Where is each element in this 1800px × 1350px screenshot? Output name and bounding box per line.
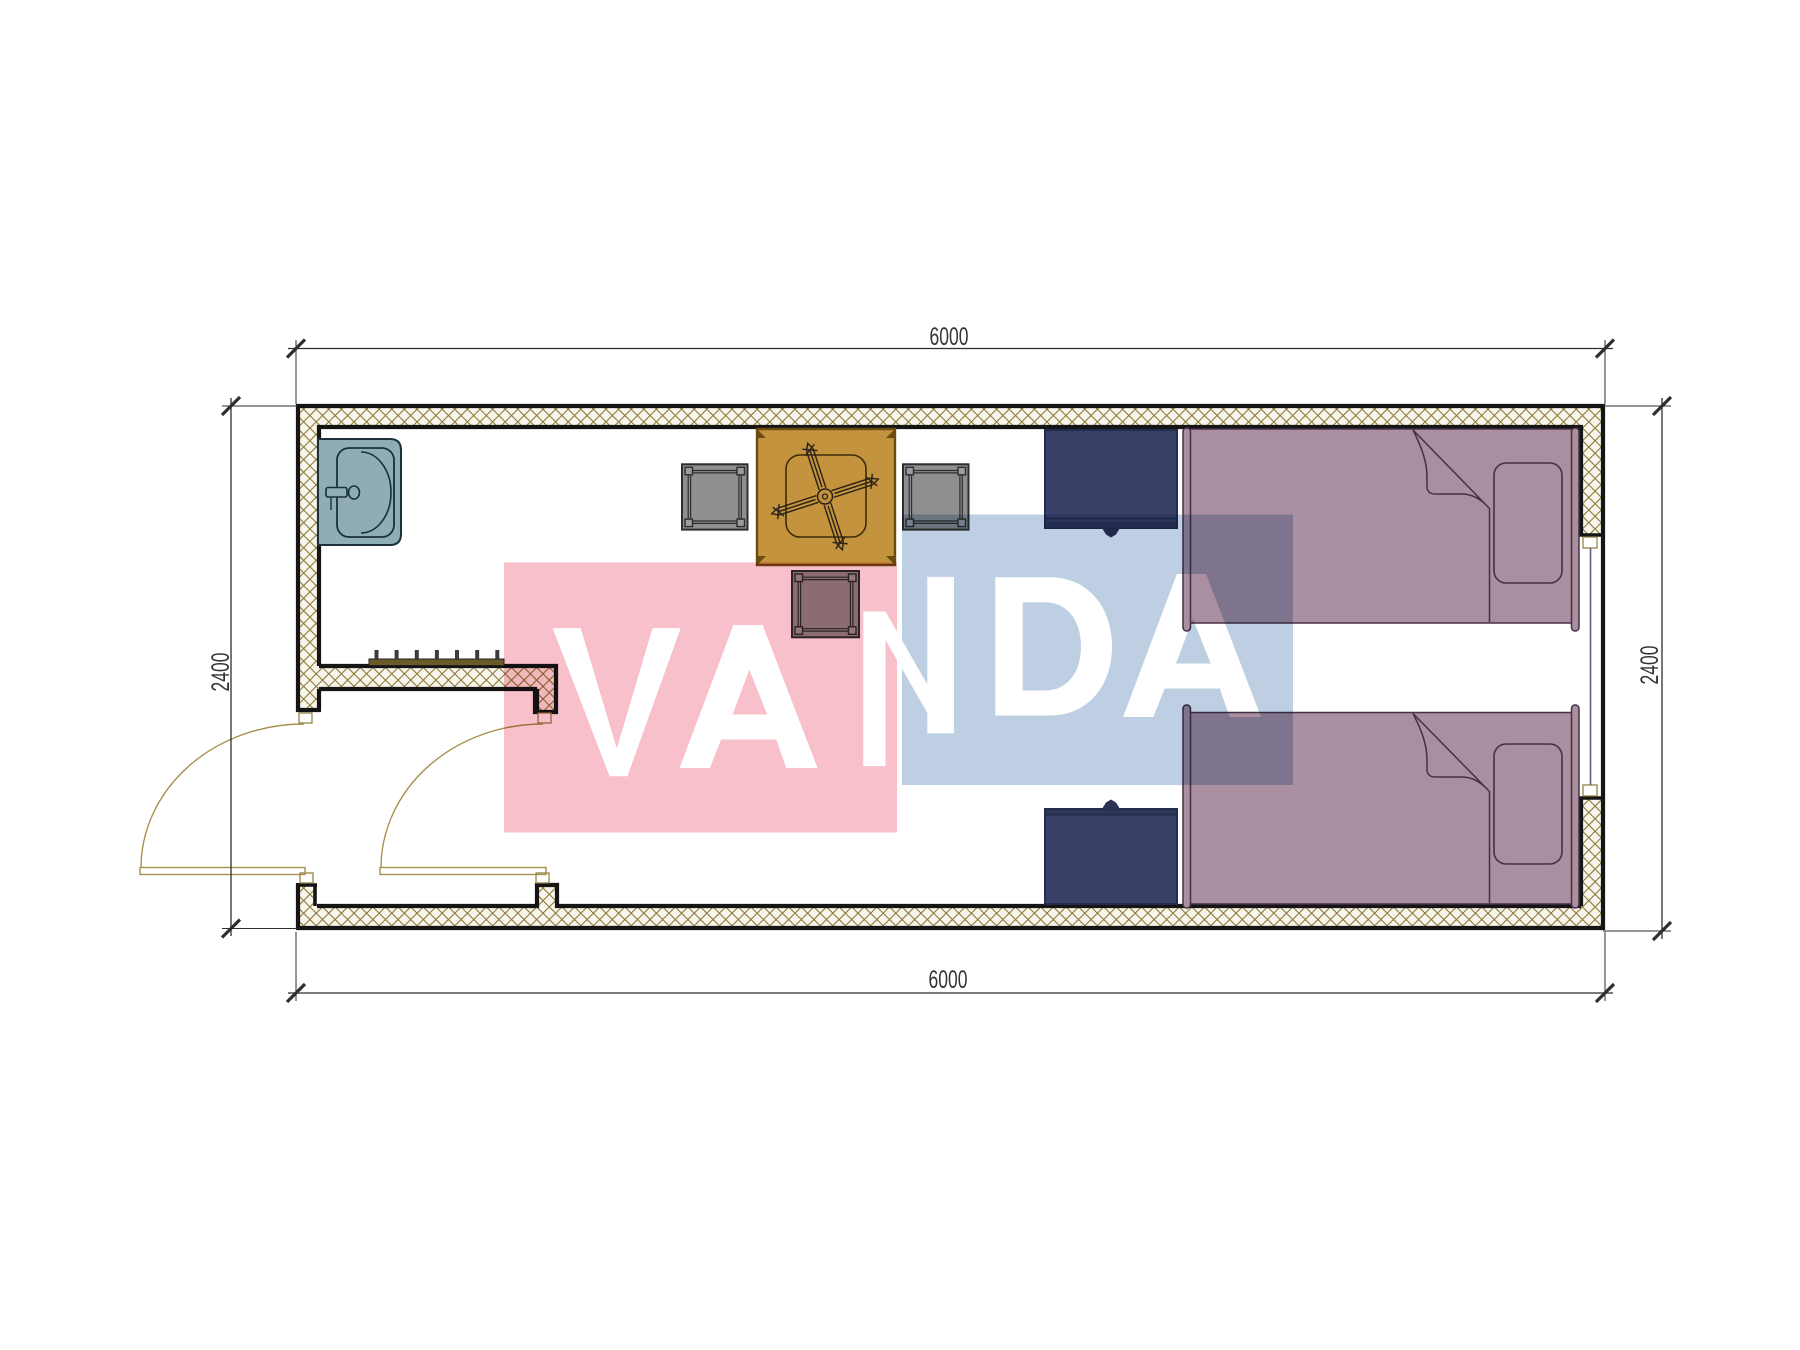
svg-text:2400: 2400	[1635, 646, 1664, 685]
svg-text:6000: 6000	[929, 965, 968, 994]
svg-text:2400: 2400	[206, 653, 235, 692]
svg-text:6000: 6000	[930, 322, 969, 351]
